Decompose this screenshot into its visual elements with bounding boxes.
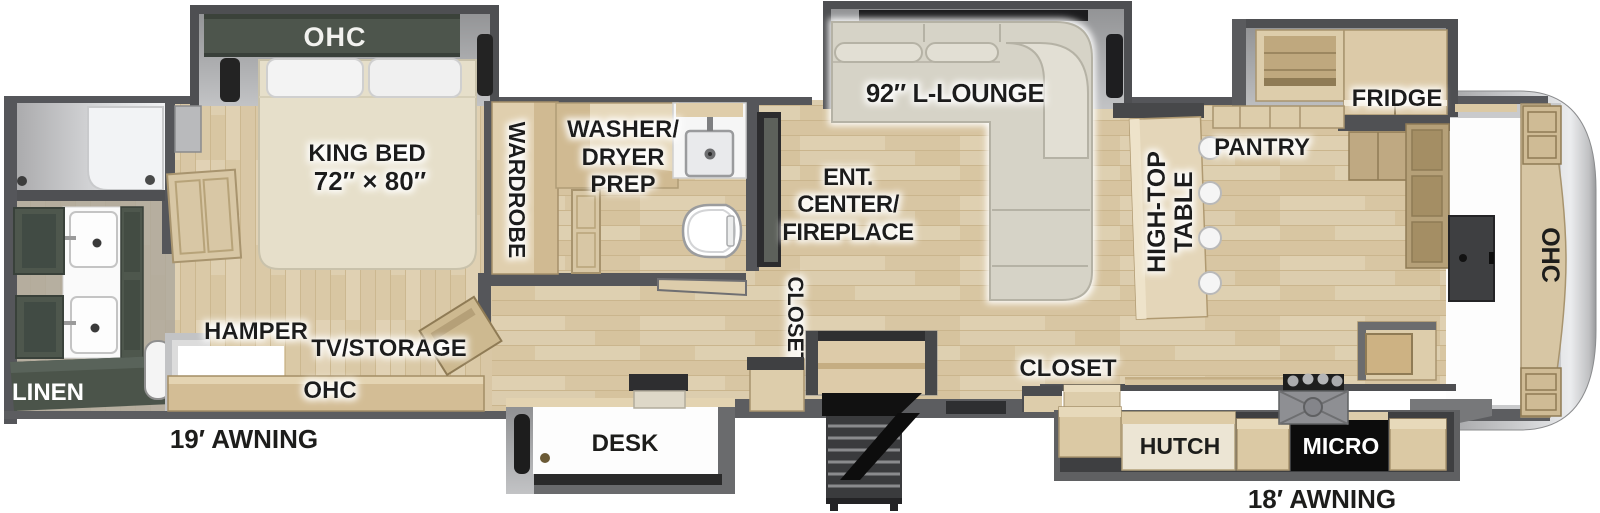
- svg-text:PANTRY: PANTRY: [1214, 134, 1310, 161]
- svg-text:LINEN: LINEN: [12, 379, 84, 406]
- svg-text:19′ AWNING: 19′ AWNING: [170, 424, 318, 454]
- svg-text:CLOSET: CLOSET: [783, 276, 808, 366]
- svg-text:92″ L-LOUNGE: 92″ L-LOUNGE: [866, 78, 1045, 108]
- svg-text:OHC: OHC: [1536, 227, 1564, 283]
- svg-text:TABLE: TABLE: [1170, 171, 1198, 252]
- svg-text:ENT.: ENT.: [823, 164, 873, 191]
- svg-text:WASHER/: WASHER/: [567, 116, 679, 143]
- svg-text:TV/STORAGE: TV/STORAGE: [311, 335, 467, 362]
- svg-text:HUTCH: HUTCH: [1140, 433, 1221, 459]
- svg-text:PREP: PREP: [590, 171, 655, 198]
- svg-text:KING BED: KING BED: [308, 140, 425, 167]
- svg-text:CENTER/: CENTER/: [797, 191, 900, 218]
- svg-text:OHC: OHC: [304, 22, 367, 52]
- svg-text:FIREPLACE: FIREPLACE: [782, 219, 914, 246]
- svg-text:OHC: OHC: [303, 377, 356, 404]
- svg-text:HIGH-TOP: HIGH-TOP: [1143, 151, 1171, 273]
- svg-text:72″ × 80″: 72″ × 80″: [314, 166, 426, 196]
- svg-text:WARDROBE: WARDROBE: [504, 122, 530, 259]
- svg-text:CLOSET: CLOSET: [1019, 355, 1117, 382]
- svg-text:FRIDGE: FRIDGE: [1352, 85, 1443, 112]
- svg-text:DESK: DESK: [592, 430, 659, 457]
- svg-text:MICRO: MICRO: [1303, 433, 1380, 459]
- svg-text:18′ AWNING: 18′ AWNING: [1248, 484, 1396, 513]
- svg-text:DRYER: DRYER: [581, 144, 664, 171]
- svg-text:HAMPER: HAMPER: [204, 318, 308, 345]
